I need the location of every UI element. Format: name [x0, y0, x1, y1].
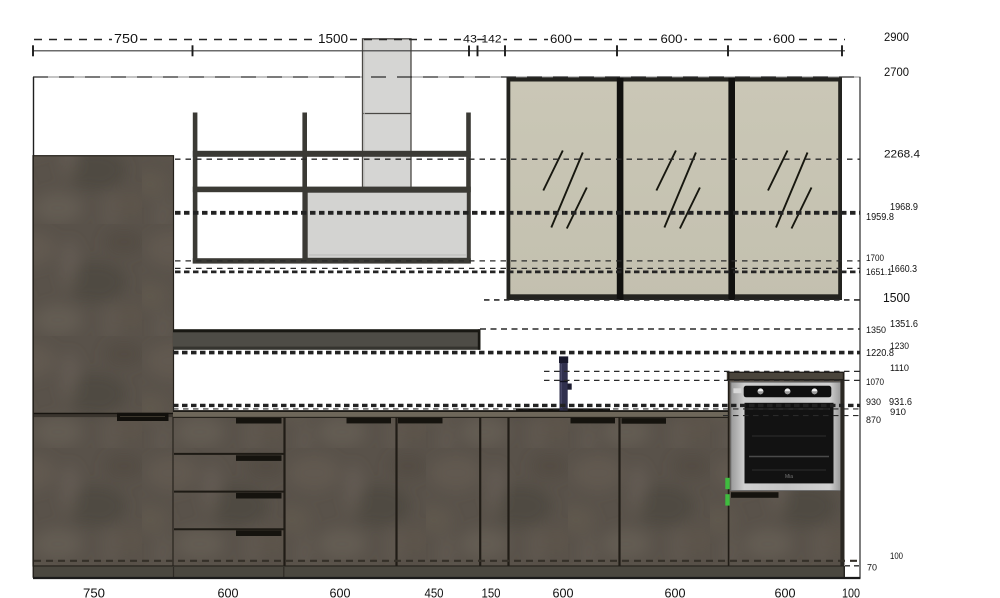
svg-text:600: 600 — [330, 586, 351, 598]
svg-text:910: 910 — [890, 406, 906, 417]
svg-text:1070: 1070 — [866, 376, 884, 387]
svg-text:150: 150 — [482, 586, 501, 598]
svg-text:600: 600 — [661, 32, 683, 46]
svg-text:2700: 2700 — [884, 65, 909, 79]
svg-text:1500: 1500 — [883, 291, 910, 305]
svg-text:600: 600 — [553, 586, 574, 598]
svg-text:600: 600 — [773, 32, 795, 46]
svg-text:100: 100 — [890, 550, 903, 561]
svg-text:1500: 1500 — [318, 31, 348, 46]
svg-text:600: 600 — [775, 586, 796, 598]
svg-text:600: 600 — [550, 32, 572, 46]
svg-text:43: 43 — [463, 34, 477, 46]
svg-text:1959.8: 1959.8 — [866, 212, 895, 223]
svg-text:1660.3: 1660.3 — [890, 264, 917, 275]
svg-text:1350: 1350 — [866, 324, 886, 335]
svg-text:70: 70 — [867, 562, 877, 573]
svg-text:750: 750 — [83, 586, 105, 598]
svg-text:600: 600 — [665, 586, 686, 598]
svg-text:2268.4: 2268.4 — [884, 149, 920, 161]
svg-text:1968.9: 1968.9 — [890, 202, 918, 213]
svg-text:2900: 2900 — [884, 30, 909, 44]
svg-text:600: 600 — [218, 586, 239, 598]
svg-text:142: 142 — [482, 34, 502, 46]
svg-text:930: 930 — [866, 396, 881, 407]
svg-text:100: 100 — [842, 586, 860, 598]
svg-text:1700: 1700 — [866, 252, 884, 263]
svg-text:870: 870 — [866, 414, 881, 425]
svg-text:1651.1: 1651.1 — [866, 266, 892, 277]
svg-text:1351.6: 1351.6 — [890, 319, 919, 330]
svg-text:1110: 1110 — [890, 362, 909, 373]
svg-text:450: 450 — [425, 586, 444, 598]
svg-text:Mia: Mia — [785, 474, 793, 480]
svg-text:750: 750 — [114, 31, 138, 46]
svg-text:1220.8: 1220.8 — [866, 348, 895, 359]
